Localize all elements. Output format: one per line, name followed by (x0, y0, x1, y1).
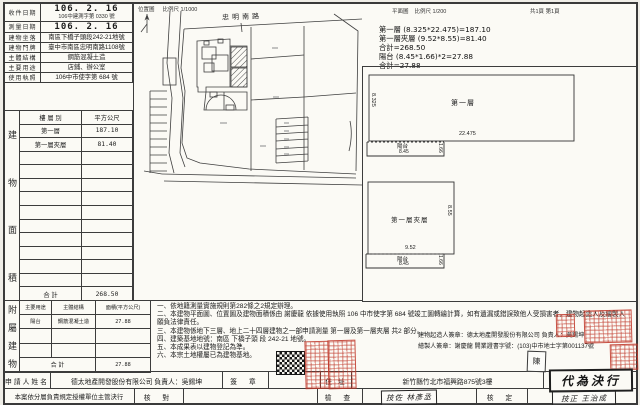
table-row: 使用執照 106中市使字第 684 號 (5, 73, 132, 82)
location-map-svg (134, 3, 363, 300)
red-official-seal-icon (556, 314, 576, 337)
area-calculation-block: 平面圖 比例尺 1/200 共1頁 第1頁 第一層 (8.325*22.475)… (362, 3, 636, 66)
table-row: 第一層 187.10 (20, 125, 132, 139)
check-space (184, 389, 318, 404)
red-official-seal-icon (304, 341, 329, 390)
delegate-label: 本案依分層負責規定授權單位主管決行 (4, 389, 135, 404)
total-row: 合 計 268.50 (20, 287, 132, 301)
column-header: 面積(平方公尺) (96, 301, 150, 315)
empty-row (20, 192, 132, 206)
empty-row (20, 165, 132, 179)
vertical-char: 積 (8, 271, 17, 284)
red-official-seal-icon (610, 344, 639, 371)
balcony1-depth-dim: 1.66 (437, 143, 443, 153)
vertical-char: 建 (8, 339, 17, 352)
note-item: 六、本宗土地權屬已為建物基地。 (157, 352, 629, 360)
structure-value: 鋼筋混凝土造 (68, 54, 106, 61)
building-survey-result-document: 收件日期 106. 2. 16 106中建測字第 0330 號 測量日期 106… (0, 0, 640, 405)
location-map-panel: 位置圖 比例尺 1/1000 忠明南路 (133, 3, 363, 301)
annex-building-table: 主要用途 主體結構 面積(平方公尺) 陽台 鋼筋混凝土造 27.88 合 計 2… (19, 300, 151, 373)
vertical-char: 屬 (8, 321, 17, 334)
column-header: 平方公尺 (82, 111, 132, 125)
inspect-label: 檢 查 (318, 389, 363, 404)
table-header-row: 樓 層 別 平方公尺 (20, 111, 132, 125)
floor-plan-title: 平面圖 (392, 7, 409, 15)
balcony2-width-dim: 8.45 (399, 261, 409, 267)
annex-use: 陽台 (20, 315, 52, 329)
vertical-char: 物 (8, 176, 17, 189)
approver-name-stamp: 技正 王治成 (552, 390, 616, 405)
location-map-scale: 比例尺 1/1000 (163, 5, 198, 13)
field-label: 主要用途 (5, 63, 41, 72)
table-row: 建物門牌 臺中市南區忠明南路1108號 (5, 43, 132, 53)
column-header: 主體結構 (52, 301, 96, 315)
case-number-value: 106中建測字第 0330 號 (58, 14, 114, 20)
table-header-row: 主要用途 主體結構 面積(平方公尺) (20, 301, 150, 315)
license-value: 106中市使字第 684 號 (55, 74, 117, 81)
inspector-name-stamp: 技佐 林彥丞 (381, 389, 437, 405)
floor-name: 第一層 (20, 125, 82, 139)
land-lot-value: 南區下橋子頭段242-21地號 (48, 34, 124, 41)
field-label: 建物門牌 (5, 43, 41, 52)
empty-row (20, 152, 132, 166)
column-header: 樓 層 別 (20, 111, 82, 125)
calculation-lines: 第一層 (8.325*22.475)=187.10 第一層夾層 (9.52*8.… (379, 26, 491, 70)
floor-name: 第一層夾層 (20, 138, 82, 152)
floor-plan-header: 平面圖 比例尺 1/200 (392, 7, 446, 15)
total-row: 合 計 27.88 (20, 358, 150, 372)
empty-row (20, 247, 132, 261)
floor1-width-dim: 22.475 (459, 131, 476, 137)
applicant-label: 申請人姓名 (4, 372, 51, 389)
vertical-char: 面 (8, 223, 17, 236)
floor-plan-panel: 第一層 8.325 22.475 陽台 8.45 1.66 第一層夾層 8.55… (362, 66, 638, 302)
field-label: 使用執照 (5, 73, 41, 82)
table-row: 建物坐落 南區下橋子頭段242-21地號 (5, 33, 132, 43)
cadastral-lines (141, 11, 362, 185)
table-row: 收件日期 106. 2. 16 106中建測字第 0330 號 (5, 4, 132, 22)
survey-date-value: 106. 2. 16 (54, 22, 118, 32)
total-label: 合 計 (20, 358, 96, 372)
mezzanine-label: 第一層夾層 (391, 214, 429, 224)
location-map-title: 位置圖 (138, 5, 155, 13)
field-label: 建物坐落 (5, 33, 41, 42)
street-name-label: 忠明南路 (222, 11, 262, 22)
field-label: 主體結構 (5, 53, 41, 62)
red-official-seal-icon (327, 340, 356, 390)
check-label: 核 對 (135, 389, 184, 404)
location-map-header: 位置圖 比例尺 1/1000 (138, 5, 197, 13)
vertical-char: 物 (8, 357, 17, 370)
annex-structure: 鋼筋混凝土造 (52, 315, 96, 329)
delegated-decision-stamp: 代為決行 (549, 369, 633, 393)
balcony2-depth-dim: 1.66 (437, 255, 443, 265)
signature-label: 簽 章 (223, 372, 269, 389)
mezzanine-width-dim: 9.52 (405, 245, 416, 251)
field-label: 收件日期 (5, 4, 41, 21)
barcode-stamp-icon (276, 351, 305, 375)
table-row: 主體結構 鋼筋混凝土造 (5, 53, 132, 63)
table-row: 陽台 鋼筋混凝土造 27.88 (20, 315, 150, 329)
address-value: 新竹縣竹北市福興路875號3樓 (352, 372, 544, 389)
empty-row (20, 179, 132, 193)
drafter-name-seal-icon: 陳 (527, 351, 547, 373)
approve-label: 核 定 (477, 389, 528, 404)
empty-row (20, 344, 150, 358)
building-info-table: 收件日期 106. 2. 16 106中建測字第 0330 號 測量日期 106… (4, 3, 133, 83)
floor-area-value: 187.10 (82, 125, 132, 139)
column-header: 主要用途 (20, 301, 52, 315)
table-row: 主要用途 店鋪、辦公室 (5, 63, 132, 73)
total-label: 合 計 (20, 287, 82, 301)
address-plate-value: 臺中市南區忠明南路1108號 (48, 44, 125, 51)
note-item: 一、依地籍測量實施規則第282條之2規定辦理。 (157, 303, 629, 311)
applicant-value: 德太地產開發股份有限公司 負責人：吳錫坤 (51, 372, 223, 389)
table-row: 第一層夾層 81.40 (20, 138, 132, 152)
empty-row (20, 329, 150, 343)
empty-row (20, 206, 132, 220)
receive-date-value: 106. 2. 16 (54, 4, 118, 14)
approval-row: 本案依分層負責規定授權單位主管決行 核 對 檢 查 核 定 (4, 388, 636, 404)
table-row: 測量日期 106. 2. 16 (5, 22, 132, 33)
usage-value: 店鋪、辦公室 (68, 64, 106, 71)
floor1-label: 第一層 (451, 98, 475, 108)
annex-area-value: 27.88 (96, 315, 150, 329)
empty-row (20, 233, 132, 247)
empty-row (20, 260, 132, 274)
floor1-height-dim: 8.325 (370, 93, 376, 107)
total-area-value: 268.50 (82, 287, 132, 301)
field-label: 測量日期 (5, 22, 41, 32)
empty-row (20, 220, 132, 234)
floor-area-value: 81.40 (82, 138, 132, 152)
floor-plan-scale: 比例尺 1/200 (415, 7, 447, 15)
balcony1-width-dim: 8.45 (399, 149, 409, 155)
vertical-char: 附 (8, 303, 17, 316)
floor-area-table: 樓 層 別 平方公尺 第一層 187.10 第一層夾層 81.40 合 計 26… (19, 110, 133, 302)
red-official-seal-icon (584, 309, 633, 343)
mezzanine-height-dim: 8.55 (446, 205, 452, 216)
empty-row (20, 274, 132, 288)
page-count-label: 共1頁 第1頁 (530, 7, 560, 15)
annex-total-value: 27.88 (96, 358, 150, 372)
vertical-char: 建 (8, 128, 17, 141)
